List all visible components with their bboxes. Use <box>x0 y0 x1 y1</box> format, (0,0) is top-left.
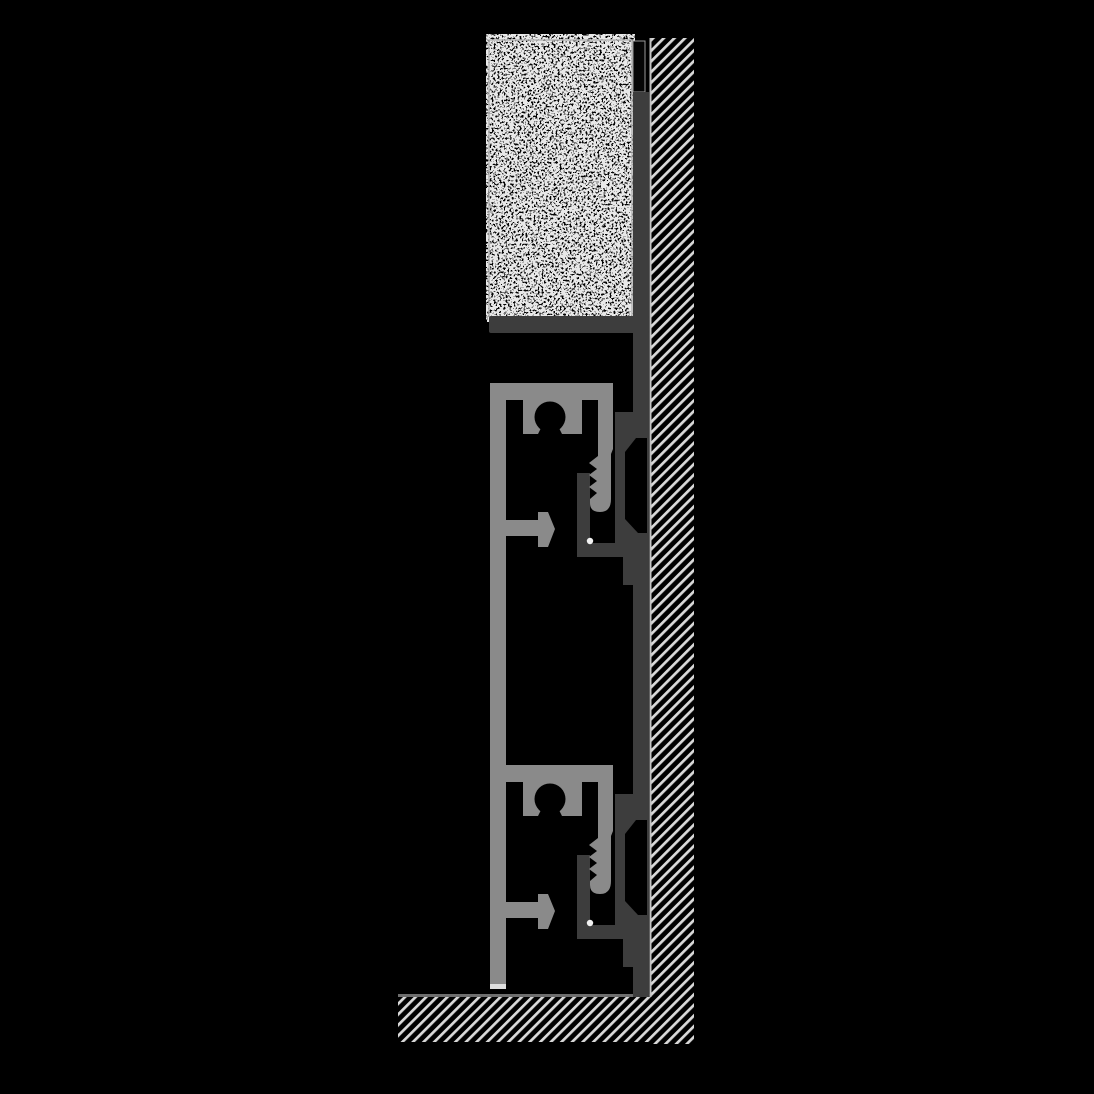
lower-channel-top-bar <box>490 765 613 782</box>
lower-socket-cavity <box>625 820 647 915</box>
lower-corner-dot <box>587 920 593 926</box>
carrier-top-support-arm <box>489 316 649 333</box>
floor-section-hatch <box>398 997 694 1042</box>
diagram-canvas <box>0 0 1094 1094</box>
rail-foot-highlight <box>490 984 506 989</box>
top-joint-strip <box>633 41 645 92</box>
upper-corner-dot <box>587 538 593 544</box>
wall-section-hatch <box>651 38 694 1044</box>
front-face-rail <box>490 383 506 988</box>
cross-section-drawing <box>0 0 1094 1094</box>
upper-channel-top-bar <box>490 383 613 400</box>
tile-covering-block <box>489 40 632 316</box>
tile-stipple-texture <box>489 40 632 316</box>
upper-socket-cavity <box>625 438 647 533</box>
